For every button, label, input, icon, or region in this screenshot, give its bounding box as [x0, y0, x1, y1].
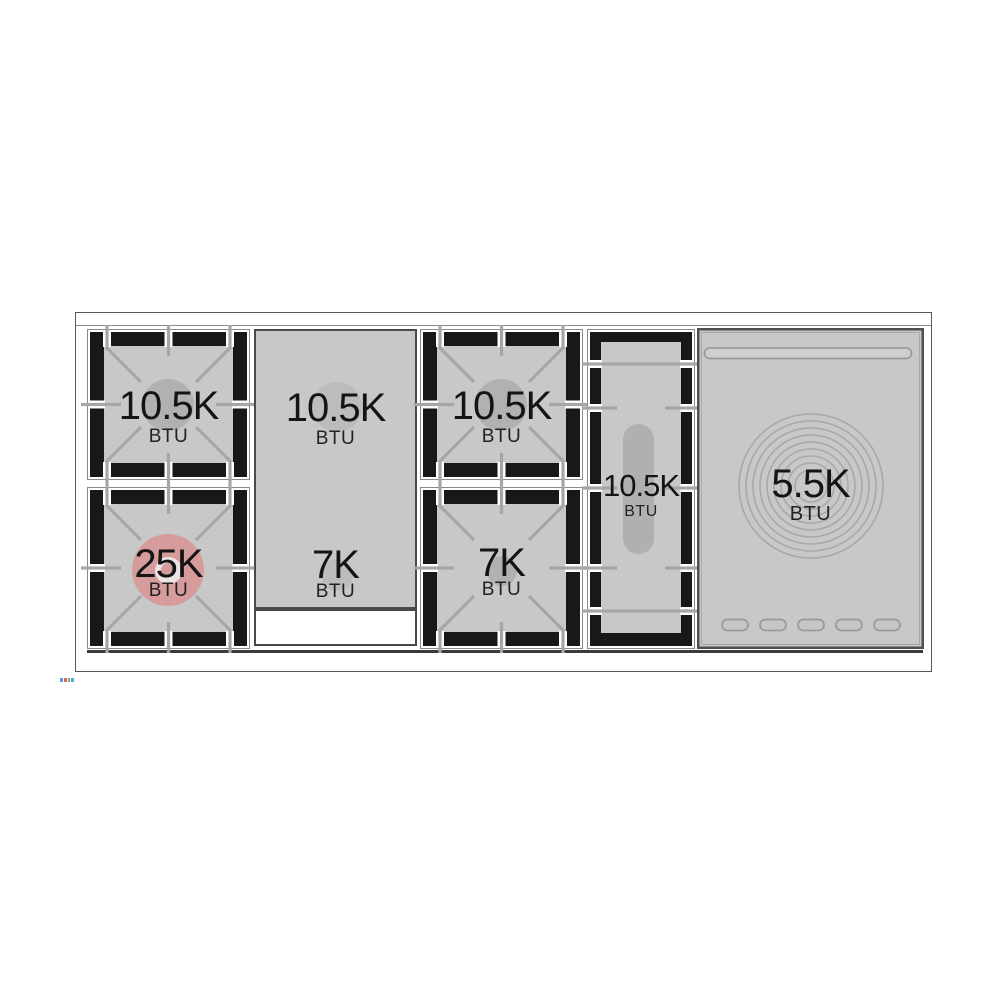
front-trim-line — [87, 650, 923, 653]
back-trim-line — [76, 325, 931, 326]
burner-oval: 10.5K BTU — [587, 329, 695, 649]
btu-unit: BTU — [697, 504, 924, 524]
btu-value: 25K — [87, 544, 250, 584]
range-top-diagram: 10.5K BTU 25K BTU 10.5K BTU 7K BTU 10.5K… — [75, 312, 932, 672]
btu-unit: BTU — [420, 580, 583, 599]
pixel-artifact — [60, 678, 74, 683]
btu-value: 5.5K — [697, 464, 924, 504]
burner-left-bottom-power: 25K BTU — [87, 487, 250, 649]
griddle-panel: 10.5K BTU 7K BTU — [254, 329, 417, 609]
btu-value: 10.5K — [420, 386, 583, 426]
btu-unit: BTU — [87, 427, 250, 446]
btu-value: 10.5K — [256, 388, 415, 428]
btu-unit: BTU — [256, 429, 415, 448]
btu-unit: BTU — [420, 427, 583, 446]
btu-value: 10.5K — [587, 470, 695, 501]
simmer-plate-panel: 5.5K BTU — [697, 328, 924, 649]
burner-left-top: 10.5K BTU — [87, 329, 250, 480]
btu-unit: BTU — [587, 504, 695, 520]
griddle-tray — [254, 609, 417, 646]
btu-unit: BTU — [256, 582, 415, 601]
btu-value: 7K — [256, 545, 415, 585]
plate-handle-slot — [705, 348, 912, 359]
btu-unit: BTU — [87, 581, 250, 600]
burner-center-bottom: 7K BTU — [420, 487, 583, 649]
btu-value: 7K — [420, 543, 583, 583]
burner-center-top: 10.5K BTU — [420, 329, 583, 480]
btu-value: 10.5K — [87, 386, 250, 426]
